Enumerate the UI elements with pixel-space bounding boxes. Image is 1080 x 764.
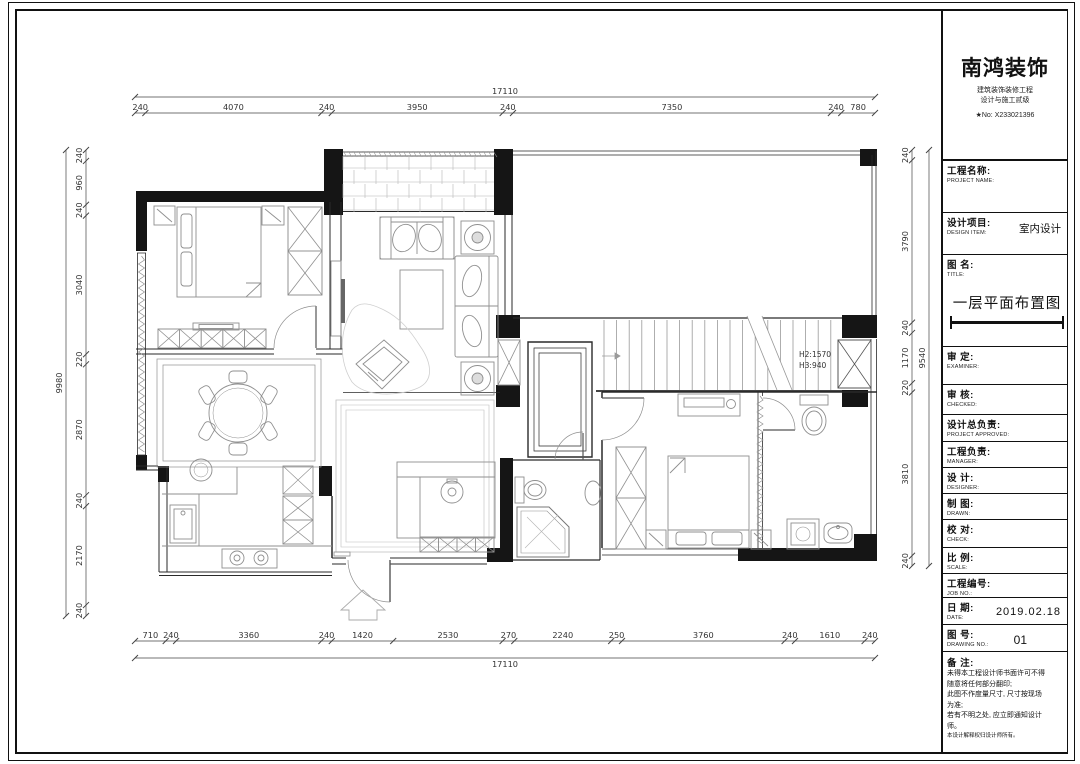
field-label-en: CHECKED: — [947, 402, 1067, 408]
floor-plan-drawing: H2:1570 H3:940 2404070240395024073502407… — [0, 0, 940, 764]
dimension-label: 2870 — [74, 419, 84, 440]
field-label-en: JOB NO.: — [947, 591, 1067, 597]
dimension-label: 3360 — [238, 630, 259, 640]
dimension-label: 3950 — [407, 102, 428, 112]
field-label-en: PROJECT APPROVED: — [947, 432, 1067, 438]
dimension-label: 240 — [163, 630, 179, 640]
dimension-label: 17110 — [492, 659, 518, 669]
titleblock-field: 制 图:DRAWN: — [943, 494, 1067, 520]
titleblock-field: 审 定:EXAMINER: — [943, 347, 1067, 385]
field-label-cn: 制 图: — [947, 496, 1067, 510]
stair-height-note-1: H2:1570 — [799, 350, 831, 359]
titleblock-field: 工程负责:MANAGER: — [943, 442, 1067, 468]
title-underline — [951, 321, 1063, 332]
dimension-label: 270 — [501, 630, 517, 640]
titleblock-field: 设计总负责:PROJECT APPROVED: — [943, 415, 1067, 442]
dimension-label: 780 — [850, 102, 866, 112]
field-label-en: CHECK: — [947, 537, 1067, 543]
dimension-label: 7350 — [662, 102, 683, 112]
note-line: 若有不明之处, 应立即通知设计 — [947, 711, 1064, 722]
field-label-cn: 工程名称: — [947, 163, 1067, 177]
note-line: 师。 — [947, 722, 1064, 733]
bedroom-2-furniture — [602, 394, 771, 549]
dining-room-furniture — [157, 359, 321, 467]
note-line: 未得本工程设计师书面许可不得 — [947, 669, 1064, 680]
dimension-label: 960 — [74, 175, 84, 191]
field-label-cn: 图 号: — [947, 627, 1067, 641]
dimension-label: 240 — [319, 102, 335, 112]
field-value: 2019.02.18 — [996, 606, 1061, 618]
title-block: 南鸿装饰 建筑装饰装修工程 设计与施工贰级 ★No: X233021396 工程… — [941, 11, 1067, 752]
field-label-en: TITLE: — [947, 272, 1067, 278]
dimension-label: 1170 — [900, 348, 910, 369]
titleblock-field: 设计项目:DESIGN ITEM:室内设计 — [943, 213, 1067, 255]
dimension-label: 240 — [900, 147, 910, 163]
drawing-title: 一层平面布置图 — [947, 292, 1067, 313]
note-line: 随意将任何部分翻印; — [947, 680, 1064, 691]
dimension-label: 240 — [132, 102, 148, 112]
dimension-label: 240 — [319, 630, 335, 640]
titleblock-field: 校 对:CHECK: — [943, 520, 1067, 548]
balcony-floor-pattern — [343, 151, 497, 212]
dimension-label: 240 — [828, 102, 844, 112]
field-label-en: MANAGER: — [947, 459, 1067, 465]
bedroom-1-furniture — [154, 206, 316, 348]
dimension-label: 240 — [74, 493, 84, 509]
field-label-en: DRAWING NO.: — [947, 642, 1067, 648]
dimension-label: 710 — [143, 630, 159, 640]
dimension-label: 240 — [862, 630, 878, 640]
company-logo-block: 南鸿装饰 建筑装饰装修工程 设计与施工贰级 ★No: X233021396 — [943, 11, 1067, 161]
dimension-label: 240 — [500, 102, 516, 112]
field-label-cn: 校 对: — [947, 522, 1067, 536]
bathroom-2-fixtures — [763, 395, 852, 549]
field-label-en: DESIGNER: — [947, 485, 1067, 491]
titleblock-field: 比 例:SCALE: — [943, 548, 1067, 574]
note-line: 本设计解释权归设计师所有。 — [947, 732, 1064, 741]
dimension-label: 220 — [74, 351, 84, 367]
hallway-entry — [334, 400, 495, 620]
titleblock-field: 图 号:DRAWING NO.:01 — [943, 625, 1067, 652]
dimension-label: 240 — [74, 603, 84, 619]
dimension-label: 250 — [609, 630, 625, 640]
dimension-label: 17110 — [492, 86, 518, 96]
dimension-label: 2240 — [552, 630, 573, 640]
dimension-label: 240 — [900, 553, 910, 569]
titleblock-field: 工程名称:PROJECT NAME: — [943, 161, 1067, 213]
field-label-cn: 工程负责: — [947, 444, 1067, 458]
dimension-label: 240 — [74, 202, 84, 218]
dimension-label: 1420 — [352, 630, 373, 640]
field-value: 室内设计 — [1019, 221, 1061, 236]
dimension-label: 3040 — [74, 275, 84, 296]
field-label-en: PROJECT NAME: — [947, 178, 1067, 184]
company-cert-number: ★No: X233021396 — [976, 111, 1035, 119]
field-label-cn: 设计总负责: — [947, 417, 1067, 431]
dimension-label: 2530 — [437, 630, 458, 640]
dimension-label: 1610 — [819, 630, 840, 640]
notes-label: 备 注: — [947, 655, 1064, 669]
titleblock-field: 设 计:DESIGNER: — [943, 468, 1067, 494]
note-line: 为准; — [947, 701, 1064, 712]
stair-height-note-2: H3:940 — [799, 361, 826, 370]
field-label-en: DRAWN: — [947, 511, 1067, 517]
dimension-label: 240 — [782, 630, 798, 640]
field-label-cn: 图 名: — [947, 257, 1067, 271]
titleblock-field: 工程编号:JOB NO.: — [943, 574, 1067, 598]
field-label-en: SCALE: — [947, 565, 1067, 571]
kitchen-furniture — [162, 459, 332, 568]
dimension-label: 240 — [74, 148, 84, 164]
stair-column — [838, 340, 871, 388]
notes-section: 备 注: 未得本工程设计师书面许可不得随意将任何部分翻印;此图不作度量尺寸, 尺… — [943, 652, 1067, 752]
field-label-en: EXAMINER: — [947, 364, 1067, 370]
dimension-label: 9540 — [917, 348, 927, 369]
field-label-cn: 设 计: — [947, 470, 1067, 484]
field-label-cn: 审 定: — [947, 349, 1067, 363]
field-label-cn: 比 例: — [947, 550, 1067, 564]
field-value: 01 — [1014, 633, 1027, 647]
titleblock-field: 日 期:DATE:2019.02.18 — [943, 598, 1067, 625]
dimension-label: 2170 — [74, 545, 84, 566]
titleblock-field: 审 核:CHECKED: — [943, 385, 1067, 415]
titleblock-field: 图 名:TITLE:一层平面布置图 — [943, 255, 1067, 347]
field-label-cn: 工程编号: — [947, 576, 1067, 590]
staircase — [602, 320, 831, 390]
field-label-cn: 审 核: — [947, 387, 1067, 401]
dimension-label: 3760 — [693, 630, 714, 640]
drawing-sheet: H2:1570 H3:940 2404070240395024073502407… — [0, 0, 1080, 764]
dimension-label: 9980 — [54, 373, 64, 394]
dimension-label: 4070 — [223, 102, 244, 112]
company-name: 南鸿装饰 — [961, 52, 1049, 82]
dimension-label: 220 — [900, 380, 910, 396]
company-subtitle: 建筑装饰装修工程 设计与施工贰级 — [977, 86, 1033, 106]
dimension-label: 3810 — [900, 464, 910, 485]
living-room-furniture — [331, 217, 498, 395]
dimension-label: 3790 — [900, 231, 910, 252]
dimension-lines: 2404070240395024073502407801711071024033… — [54, 86, 932, 669]
note-line: 此图不作度量尺寸, 尺寸按现场 — [947, 690, 1064, 701]
stair-break-line — [747, 316, 792, 390]
dimension-label: 240 — [900, 320, 910, 336]
